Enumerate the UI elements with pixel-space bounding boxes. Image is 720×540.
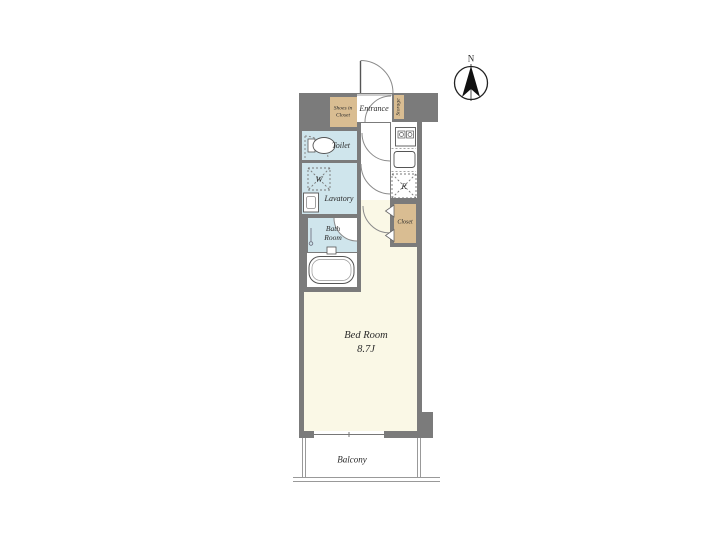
hallway-floor <box>361 123 390 200</box>
lavatory-sink <box>304 193 319 212</box>
bedroom-floor-upper <box>361 247 417 292</box>
shoes-closet-floor <box>330 97 357 127</box>
kitchen-sink <box>394 152 415 168</box>
bedroom-floor-main <box>304 292 417 431</box>
closet-floor <box>394 204 416 243</box>
wall-right <box>417 247 422 412</box>
north-compass <box>455 64 488 101</box>
storage-floor <box>394 95 404 119</box>
bedroom-floor-corridor <box>361 200 390 247</box>
floor-plan: Shoes in Closet Entrance Storage Toilet … <box>0 0 720 540</box>
floor-plan-drawing <box>0 0 720 540</box>
entrance-floor <box>357 94 392 122</box>
bedroom-window <box>314 431 384 438</box>
front-door-swing-arc <box>361 61 394 94</box>
wall-left <box>299 292 304 438</box>
refrigerator-box <box>392 174 416 198</box>
toilet-bowl <box>313 138 335 154</box>
wall-bottom-right <box>384 431 403 438</box>
wall-bottom-left <box>299 431 314 438</box>
balcony-structure <box>293 438 440 482</box>
stove <box>396 128 416 147</box>
bathtub-faucet <box>327 247 336 254</box>
